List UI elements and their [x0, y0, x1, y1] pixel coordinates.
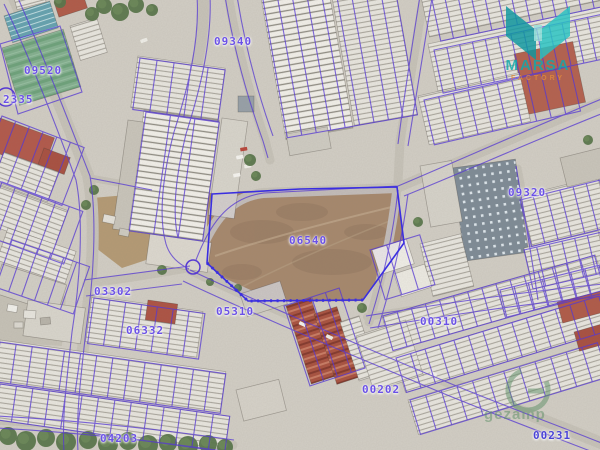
map-canvas[interactable]	[0, 0, 600, 450]
map-viewport: 0934009520233509320065400330205310003100…	[0, 0, 600, 450]
parcel-label-00231: 00231	[533, 429, 571, 442]
parcel-label-06332: 06332	[126, 324, 164, 337]
parcel-label-04203: 04203	[100, 432, 138, 445]
parcel-label-09320: 09320	[508, 186, 546, 199]
parcel-label-09520: 09520	[24, 64, 62, 77]
parcel-label-09340: 09340	[214, 35, 252, 48]
parcel-label-00202: 00202	[362, 383, 400, 396]
parcel-label-03302: 03302	[94, 285, 132, 298]
parcel-label-05310: 05310	[216, 305, 254, 318]
parcel-label-2335: 2335	[3, 93, 34, 106]
parcel-label-06540: 06540	[289, 234, 327, 247]
parcel-label-00310: 00310	[420, 315, 458, 328]
